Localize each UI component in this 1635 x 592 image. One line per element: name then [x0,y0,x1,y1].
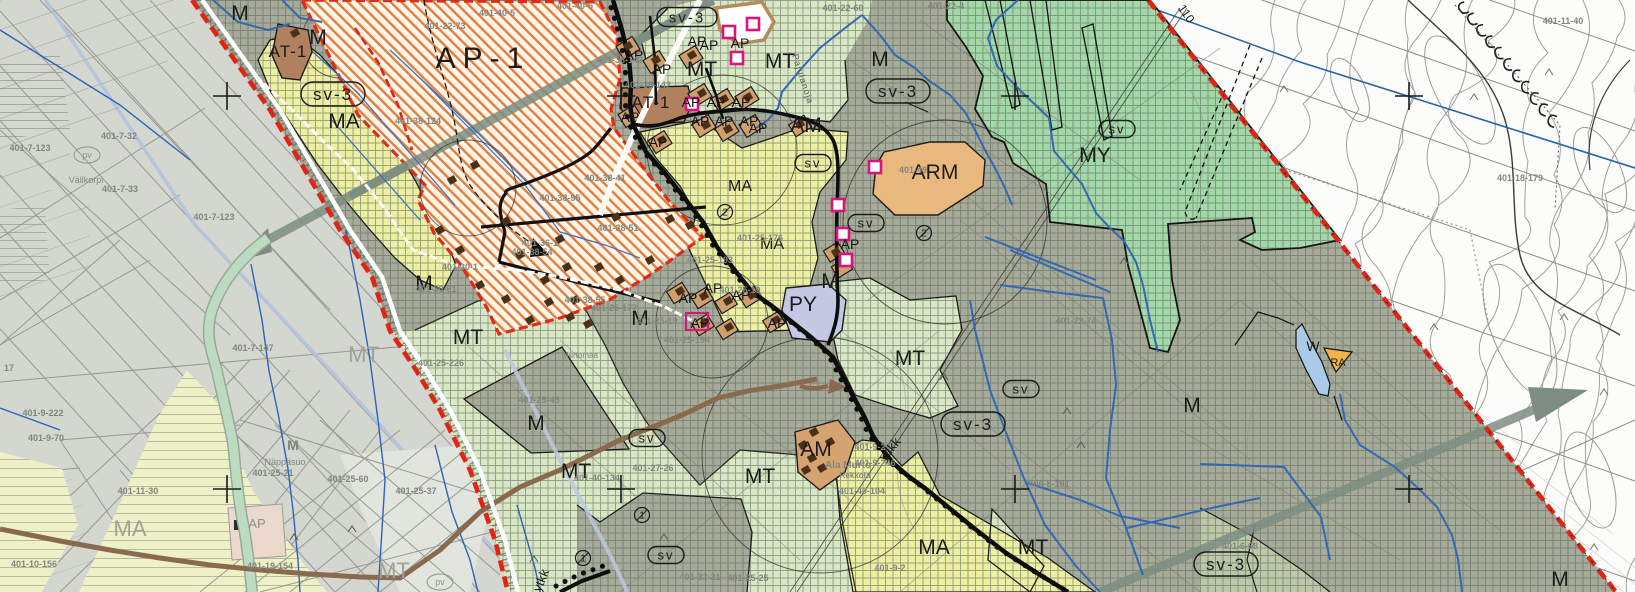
svg-text:AP: AP [679,290,698,306]
svg-text:PY: PY [789,293,817,316]
svg-text:AP: AP [649,134,668,150]
svg-text:401-25-60: 401-25-60 [327,474,368,484]
svg-text:MA: MA [328,110,360,133]
svg-text:AP: AP [682,94,701,110]
svg-text:MA: MA [114,516,147,541]
svg-text:401-25-194: 401-25-194 [664,335,710,345]
svg-text:Vällkorpi: Vällkorpi [69,175,104,185]
svg-text:401-6-68: 401-6-68 [1222,541,1258,551]
svg-text:401-7-32: 401-7-32 [101,131,137,141]
svg-text:401-7-147: 401-7-147 [232,343,273,353]
svg-text:sv: sv [1109,122,1126,137]
svg-text:401-38-124: 401-38-124 [395,116,441,126]
svg-text:AP: AP [715,113,734,129]
svg-text:Näppäsuo: Näppäsuo [264,457,305,467]
svg-text:MT: MT [687,58,717,81]
svg-text:401-38-54: 401-38-54 [511,247,552,257]
svg-text:AP: AP [653,61,672,77]
svg-text:401-38-142: 401-38-142 [625,80,671,90]
svg-text:401-11-30: 401-11-30 [118,486,159,496]
svg-text:sv: sv [805,156,822,171]
svg-text:401-27-26: 401-27-26 [632,463,673,473]
svg-text:AP: AP [707,94,726,110]
svg-text:401-25-21: 401-25-21 [252,468,293,478]
svg-text:sv: sv [1013,382,1030,397]
svg-text:401-25-19: 401-25-19 [719,285,760,295]
svg-text:401-22-4: 401-22-4 [928,1,964,11]
svg-text:401-38-51: 401-38-51 [597,223,638,233]
svg-text:sv-3: sv-3 [1206,555,1246,574]
svg-text:17: 17 [4,363,14,373]
svg-text:AP: AP [732,94,751,110]
svg-text:401-25-45: 401-25-45 [518,395,559,405]
svg-text:RA: RA [1330,357,1346,369]
svg-text:sv-3: sv-3 [953,415,993,434]
svg-text:401-38-143: 401-38-143 [597,55,643,65]
svg-text:M: M [231,2,249,25]
svg-text:AP: AP [731,35,750,51]
svg-text:MA: MA [728,178,752,195]
svg-text:401-22-74: 401-22-74 [1055,316,1096,326]
svg-text:401-25-25: 401-25-25 [727,573,768,583]
svg-text:MT: MT [348,342,380,367]
svg-text:AM: AM [790,114,822,137]
svg-text:Ala Murto: Ala Murto [825,460,871,471]
svg-text:401-22-60: 401-22-60 [822,3,863,13]
svg-text:401-25-37: 401-25-37 [395,486,436,496]
svg-text:M: M [287,437,299,453]
svg-text:sv: sv [639,431,656,446]
svg-text:M: M [527,412,545,435]
svg-text:401-32-21: 401-32-21 [679,572,720,582]
svg-text:401-22-73: 401-22-73 [424,21,465,31]
svg-text:M: M [309,26,327,49]
svg-text:AP: AP [749,120,768,136]
svg-text:MT: MT [378,558,410,583]
svg-text:pv: pv [82,150,92,160]
svg-text:401-25-177: 401-25-177 [591,303,637,313]
svg-text:401-30-61: 401-30-61 [415,284,456,294]
svg-text:401-40-5: 401-40-5 [479,8,515,18]
svg-text:401-9-2: 401-9-2 [874,563,905,573]
svg-text:AM: AM [800,438,832,461]
svg-text:MA: MA [918,536,950,559]
svg-text:401-40-104: 401-40-104 [839,486,885,496]
svg-text:401-40-134: 401-40-134 [574,473,620,483]
svg-text:MT: MT [745,465,775,488]
svg-text:401-9-70: 401-9-70 [28,433,64,443]
svg-text:AP: AP [248,516,265,531]
svg-text:AP: AP [768,315,787,331]
svg-text:AP: AP [700,37,719,53]
svg-text:M: M [1551,568,1569,591]
svg-text:MT: MT [895,347,925,370]
svg-text:401-25-176: 401-25-176 [737,233,783,243]
svg-text:M: M [1183,394,1201,417]
svg-text:sv-3: sv-3 [313,85,353,104]
svg-text:401-25-226: 401-25-226 [418,358,464,368]
svg-text:AT-1: AT-1 [269,42,308,61]
svg-text:401-19-154: 401-19-154 [247,561,293,571]
svg-text:pv: pv [435,577,445,587]
svg-text:401-10-156: 401-10-156 [11,559,57,569]
svg-text:401-30-1: 401-30-1 [442,262,478,272]
svg-text:401-18-179: 401-18-179 [1497,173,1543,183]
svg-text:401-38-41: 401-38-41 [584,173,625,183]
svg-text:401-49: 401-49 [899,165,927,175]
svg-text:401-25-19: 401-25-19 [636,316,677,326]
svg-text:Murtomaa: Murtomaa [562,351,599,360]
svg-text:sv: sv [658,548,675,563]
svg-text:401-7-123: 401-7-123 [9,143,50,153]
svg-text:406-8-101: 406-8-101 [1028,479,1069,489]
svg-text:M: M [871,48,889,71]
svg-text:MT: MT [453,326,483,349]
svg-text:MT: MT [765,50,795,73]
svg-text:AP-1: AP-1 [436,42,531,75]
svg-text:Rekkola: Rekkola [840,471,871,480]
svg-text:MT: MT [1018,536,1048,559]
svg-text:sv: sv [858,216,875,231]
svg-text:M: M [821,270,839,293]
svg-text:401-7-123: 401-7-123 [193,212,234,222]
svg-text:401-25-193: 401-25-193 [687,255,733,265]
svg-text:sv-3: sv-3 [878,82,918,101]
svg-text:AP: AP [691,113,710,129]
svg-text:401-7-33: 401-7-33 [102,184,138,194]
svg-text:401-11-40: 401-11-40 [1543,16,1584,26]
svg-text:sv-3: sv-3 [669,9,705,26]
svg-text:401-38-95: 401-38-95 [539,193,580,203]
svg-text:AP: AP [841,236,860,252]
svg-text:W: W [1306,338,1320,354]
svg-text:401-9-222: 401-9-222 [22,408,63,418]
svg-text:AP: AP [691,315,710,331]
svg-text:AP: AP [621,109,640,125]
svg-text:MY: MY [1079,144,1111,167]
svg-text:401-40-5: 401-40-5 [557,1,593,11]
